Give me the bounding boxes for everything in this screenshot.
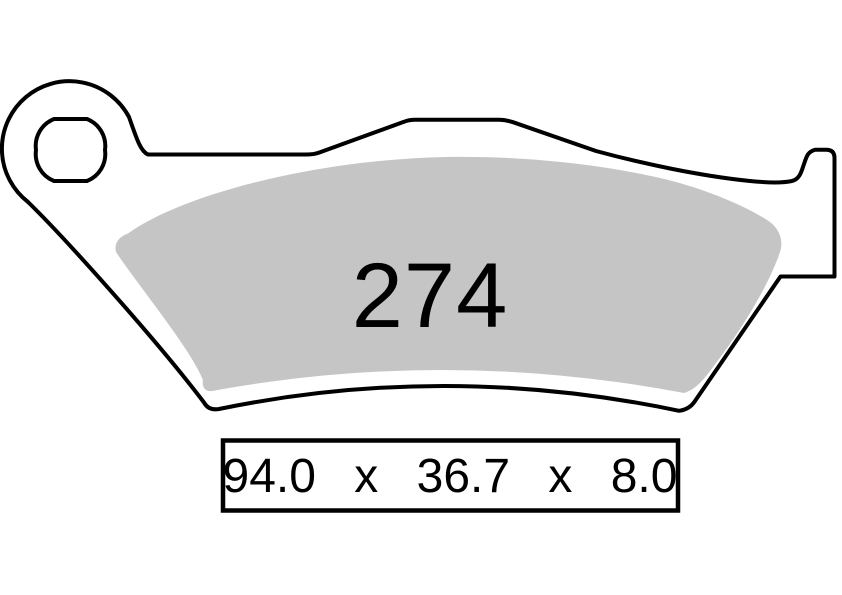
dimension-height: 36.7 <box>417 450 510 503</box>
dimension-thickness: 8.0 <box>611 450 678 503</box>
dimension-separator-icon: x <box>548 450 572 503</box>
brake-pad-diagram: 274 94.0 x 36.7 x 8.0 <box>0 0 842 595</box>
part-number-label: 274 <box>352 245 509 347</box>
brake-pad-drawing: 274 94.0 x 36.7 x 8.0 <box>0 0 842 595</box>
dimension-separator-icon: x <box>354 450 378 503</box>
dimensions-box: 94.0 x 36.7 x 8.0 <box>223 441 678 511</box>
mounting-hole <box>36 119 106 181</box>
dimension-width: 94.0 <box>223 450 316 503</box>
